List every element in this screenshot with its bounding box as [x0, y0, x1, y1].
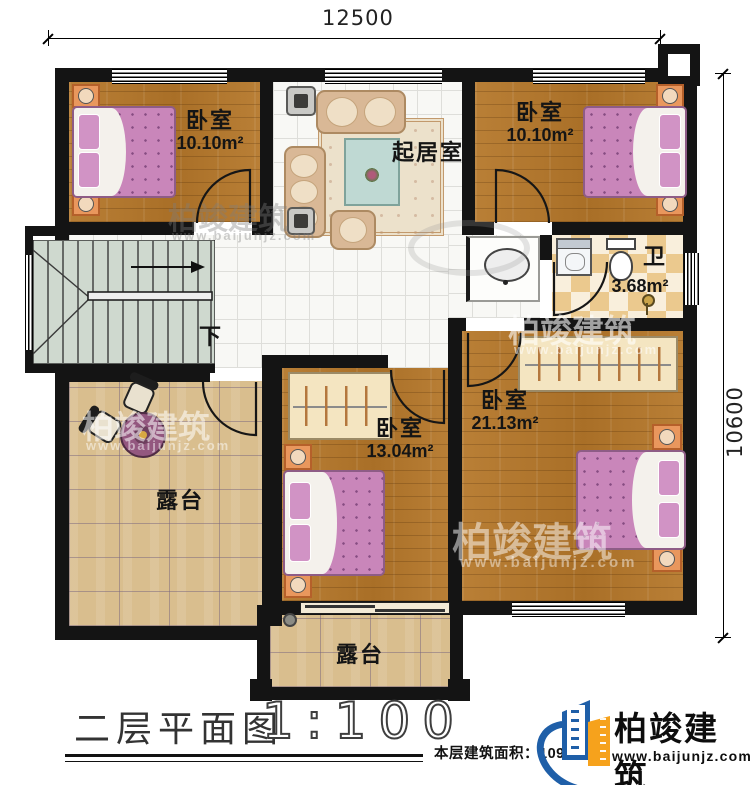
bed-bedroomR	[576, 450, 686, 550]
label-terraceB: 露台	[318, 642, 402, 667]
wall-terraceL-right	[262, 355, 282, 626]
wall-bath-left-stub	[540, 235, 552, 260]
sofa-cushion	[290, 180, 318, 204]
label-bath-area: 3.68m²	[598, 276, 682, 297]
sliding-door-terrace	[300, 602, 450, 614]
stairs-direction: 下	[194, 324, 228, 349]
sofa-top	[316, 90, 406, 134]
label-terraceL: 露台	[138, 488, 222, 513]
bed-fold	[632, 452, 656, 548]
bed-bedroomMid	[283, 470, 385, 576]
dimension-top-line	[48, 38, 660, 39]
wall-bedroomTL-bottom-a	[55, 222, 194, 235]
wall-bedroomTL-bottom-b	[252, 222, 273, 235]
door-terraceL	[200, 380, 258, 438]
pillow	[659, 114, 681, 150]
label-stairs-down: 下	[194, 324, 228, 349]
sliding-door-panel-right	[375, 609, 445, 612]
staircase	[33, 240, 215, 364]
label-bedroomTR: 卧室 10.10m²	[485, 100, 595, 146]
label-bath-name: 卫	[630, 244, 680, 269]
room-area: 13.04m²	[352, 441, 448, 462]
brand-url: www.baijunjz.com	[612, 748, 750, 764]
label-living: 起居室	[378, 140, 478, 165]
plant-stand	[287, 207, 315, 235]
pillow	[78, 152, 100, 188]
wall-bedroomTR-bottom-b	[552, 222, 697, 235]
window-bedroomR	[512, 602, 625, 617]
nightstand	[284, 444, 312, 470]
bed-fold	[313, 472, 337, 574]
plan-title: 二层平面图	[74, 700, 284, 752]
bed-fold	[633, 108, 657, 196]
room-name: 卧室	[352, 416, 448, 441]
room-name: 起居室	[378, 140, 478, 165]
room-name: 卧室	[448, 388, 562, 413]
floor-drain-stem	[646, 303, 648, 315]
sink-faucet	[503, 280, 508, 285]
wall-bedroomMid-top	[282, 355, 388, 368]
room-name: 卫	[630, 244, 680, 269]
wall-bedroomR-left	[448, 331, 462, 601]
room-name: 卧室	[485, 100, 595, 125]
floorplan-canvas: 12500 10600	[0, 0, 750, 785]
bed-fold	[102, 108, 126, 196]
sofa-cushion	[339, 217, 367, 243]
room-area: 21.13m²	[448, 413, 562, 434]
pillow	[289, 524, 311, 562]
room-name: 露台	[138, 488, 222, 513]
pillow	[78, 114, 100, 150]
window-living	[325, 69, 442, 84]
sofa-cushion	[326, 97, 358, 127]
wall-bath-bottom-b	[524, 318, 683, 331]
armchair	[330, 210, 376, 250]
nightstand	[72, 84, 100, 108]
sofa-cushion	[290, 154, 318, 178]
brand-logo-tower-orange	[588, 716, 610, 766]
sliding-door-panel-left	[305, 605, 375, 608]
nightstand	[652, 424, 682, 450]
chimney-inner	[668, 54, 690, 76]
pillow	[289, 482, 311, 520]
wall-bottom-left	[55, 626, 270, 640]
room-name: 卧室	[150, 108, 270, 133]
label-bedroomTL: 卧室 10.10m²	[150, 108, 270, 154]
bed-bedroomTR	[583, 106, 687, 198]
nightstand	[656, 84, 684, 108]
window-bathroom	[684, 253, 699, 305]
dimension-right-label: 10600	[723, 382, 747, 462]
brand-logo-tower-blue	[562, 700, 590, 760]
wardrobe-bedroomR	[518, 336, 678, 392]
door-bedroomTR	[494, 167, 552, 225]
pillow	[659, 152, 681, 188]
label-bedroomR: 卧室 21.13m²	[448, 388, 562, 434]
terraceB-drain	[283, 613, 297, 627]
tv-cabinet	[286, 86, 316, 116]
wall-left-upper	[55, 68, 69, 240]
sofa-cushion	[364, 97, 396, 127]
window-bedroomTL	[112, 69, 227, 84]
room-area: 10.10m²	[485, 125, 595, 146]
wall-bath-bottom-a	[448, 318, 466, 331]
watermark-swirl	[408, 220, 530, 276]
washer-panel	[558, 240, 590, 249]
dimension-top-label: 12500	[322, 6, 394, 30]
dimension-right-line	[723, 73, 724, 637]
door-bedroomR	[466, 331, 524, 389]
brand-name: 柏竣建筑	[614, 702, 750, 785]
terrace-table	[120, 412, 166, 458]
wall-left-lower	[55, 372, 69, 640]
title-underline-thin	[65, 761, 423, 762]
room-area: 3.68m²	[598, 276, 682, 297]
room-name: 露台	[318, 642, 402, 667]
window-bedroomTR	[533, 69, 645, 84]
pillow	[658, 502, 680, 538]
label-bedroomMid: 卧室 13.04m²	[352, 416, 448, 462]
pillow	[658, 460, 680, 496]
room-area: 10.10m²	[150, 133, 270, 154]
title-underline-thick	[65, 754, 423, 757]
door-bedroomTL	[194, 167, 252, 225]
